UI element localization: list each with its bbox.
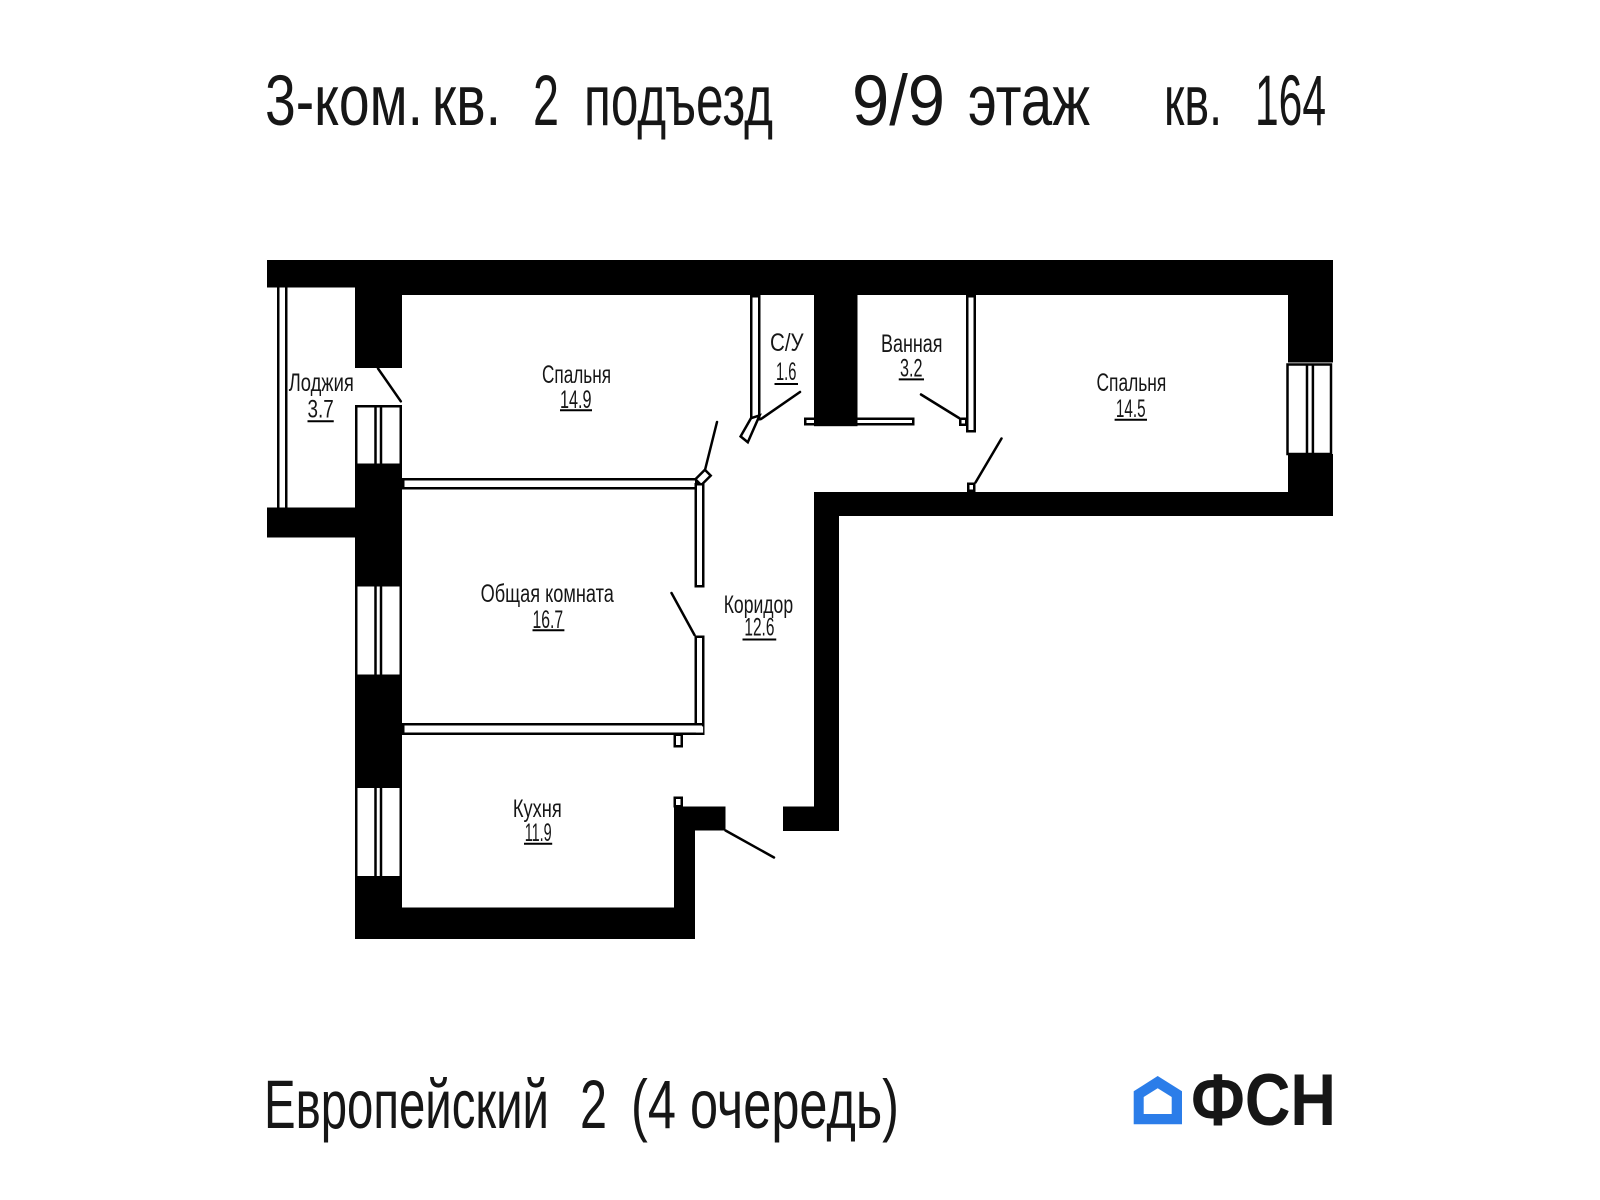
svg-text:12.6: 12.6	[744, 614, 774, 642]
svg-text:2: 2	[533, 62, 559, 141]
svg-text:С/У: С/У	[770, 329, 804, 357]
svg-text:Общая комната: Общая комната	[481, 580, 614, 608]
svg-text:1.6: 1.6	[776, 358, 796, 386]
svg-text:Европейский: Европейский	[264, 1066, 549, 1143]
svg-text:этаж: этаж	[968, 62, 1090, 141]
svg-text:3.7: 3.7	[308, 396, 334, 424]
svg-text:ФСН: ФСН	[1191, 1060, 1336, 1141]
svg-text:Спальня: Спальня	[1097, 369, 1167, 397]
svg-text:(4 очередь): (4 очередь)	[631, 1066, 899, 1143]
svg-text:кв.: кв.	[432, 62, 501, 141]
svg-text:9/9: 9/9	[852, 62, 945, 141]
svg-text:Спальня: Спальня	[542, 361, 611, 389]
svg-text:164: 164	[1255, 62, 1326, 141]
svg-text:2: 2	[580, 1066, 607, 1143]
svg-text:кв.: кв.	[1164, 62, 1222, 141]
svg-text:Лоджия: Лоджия	[289, 369, 354, 397]
svg-text:подъезд: подъезд	[584, 62, 773, 141]
svg-text:3-ком.: 3-ком.	[265, 62, 423, 141]
svg-text:3.2: 3.2	[900, 355, 923, 383]
